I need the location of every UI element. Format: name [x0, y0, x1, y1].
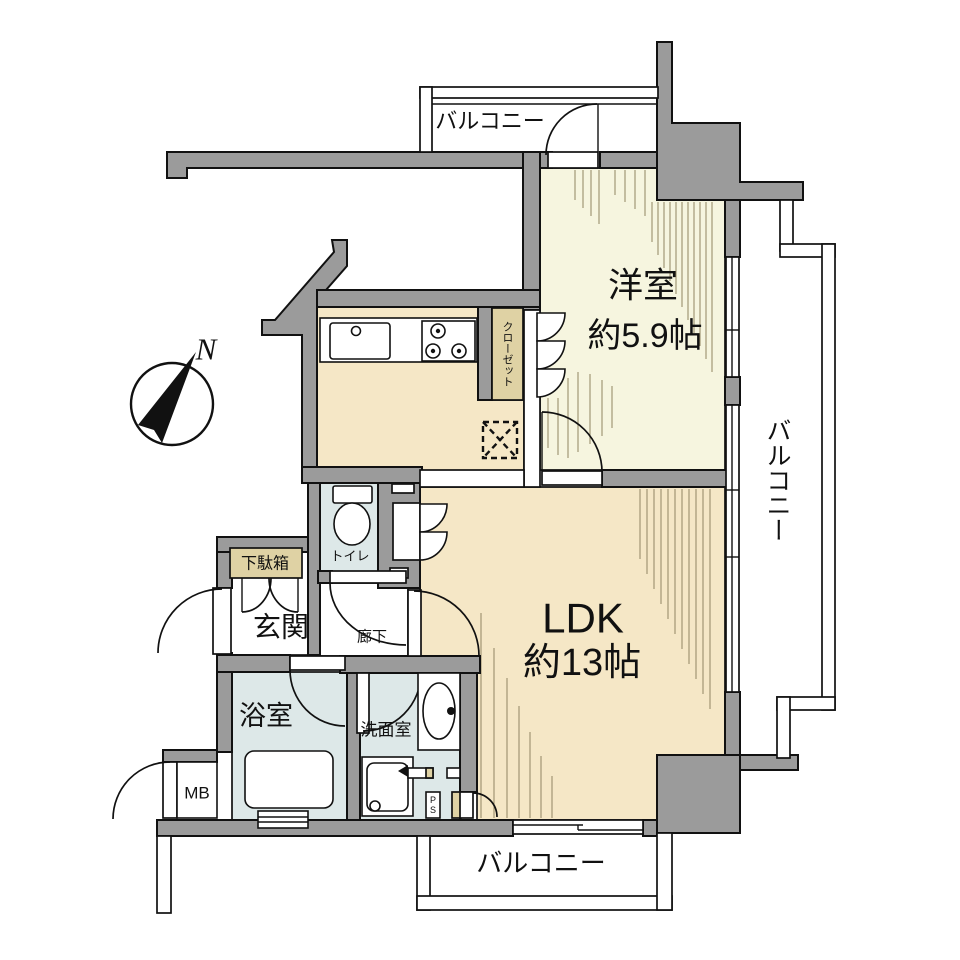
washing-machine-icon: [362, 757, 413, 816]
wall-kitchen-top: [317, 290, 540, 307]
wall-mb-top: [163, 750, 217, 762]
wall-toilet-left-column: [308, 483, 320, 655]
partition-stub-bottom-left: [157, 836, 171, 913]
balcony-top-railing-left: [420, 87, 432, 152]
kitchen-ldk-threshold: [420, 470, 524, 487]
pipe-space-label: PS: [428, 795, 438, 815]
toilet-icon: [333, 486, 372, 545]
bathroom-label: 浴室: [239, 701, 293, 731]
balcony-right-label: バルコニー: [763, 418, 791, 543]
wall-entrance-bottom: [217, 655, 290, 672]
entrance-door: [158, 588, 231, 654]
washroom-label: 洗面室: [361, 721, 412, 740]
wall-west-ldk-divider: [602, 470, 727, 487]
western-room-label: 洋室: [608, 267, 678, 306]
balcony-bottom-rail-bottom: [417, 896, 672, 910]
balcony-bottom-label: バルコニー: [476, 848, 605, 878]
balcony-top-label: バルコニー: [435, 109, 545, 134]
washbasin-icon: [418, 673, 460, 750]
window-ldk-right: [726, 405, 739, 692]
storage-recess-ldk: [393, 503, 420, 560]
wall-kitchen-bottom: [302, 467, 422, 483]
wall-right-2: [725, 377, 740, 405]
wall-niche-upper: [392, 484, 414, 493]
meter-box-label: MB: [184, 784, 210, 803]
window-ldk-bottom: [513, 820, 643, 834]
closet-folding-door: [537, 313, 565, 397]
wall-top-band-right: [600, 152, 657, 168]
hallway-label: 廊下: [357, 629, 387, 646]
balcony-right-rail-5: [777, 697, 790, 758]
wall-washroom-right: [460, 673, 477, 792]
floorplan-svg: N 洋室 約5.9帖 LDK 約13帖 バルコニー バルコニー バルコニー クロ…: [0, 0, 960, 960]
wall-bottom-band: [157, 820, 513, 836]
balcony-bottom-rail-right: [657, 833, 672, 910]
wall-kitchen-closet-divider: [478, 307, 492, 400]
wall-right-1: [725, 200, 740, 257]
ldk-label: LDK: [542, 595, 624, 642]
wall-closet-column: [523, 152, 540, 310]
window-western-room: [726, 257, 739, 377]
western-room-size-label: 約5.9帖: [587, 317, 702, 355]
wall-top-band: [167, 152, 552, 178]
shoe-cabinet-label: 下駄箱: [241, 555, 289, 573]
wall-right-3: [725, 692, 740, 755]
wall-hall-bottom: [340, 656, 480, 673]
wall-bottom-stub: [643, 820, 657, 836]
closet-label: クローゼット: [501, 321, 514, 387]
compass-north-label: N: [195, 332, 219, 367]
balcony-top-railing: [420, 87, 658, 98]
balcony-right-rail-3: [822, 244, 835, 710]
ldk-size-label: 約13帖: [523, 642, 641, 684]
toilet-label: トイレ: [330, 549, 369, 564]
entrance-label: 玄関: [253, 612, 309, 643]
wall-top-right-block: [657, 42, 803, 200]
wall-bottom-right-block: [657, 755, 740, 833]
floorplan-page: N 洋室 約5.9帖 LDK 約13帖 バルコニー バルコニー バルコニー クロ…: [0, 0, 960, 960]
kitchen-counter-icon: [320, 318, 477, 362]
meter-box-door: [113, 762, 177, 819]
compass: N: [131, 332, 219, 446]
